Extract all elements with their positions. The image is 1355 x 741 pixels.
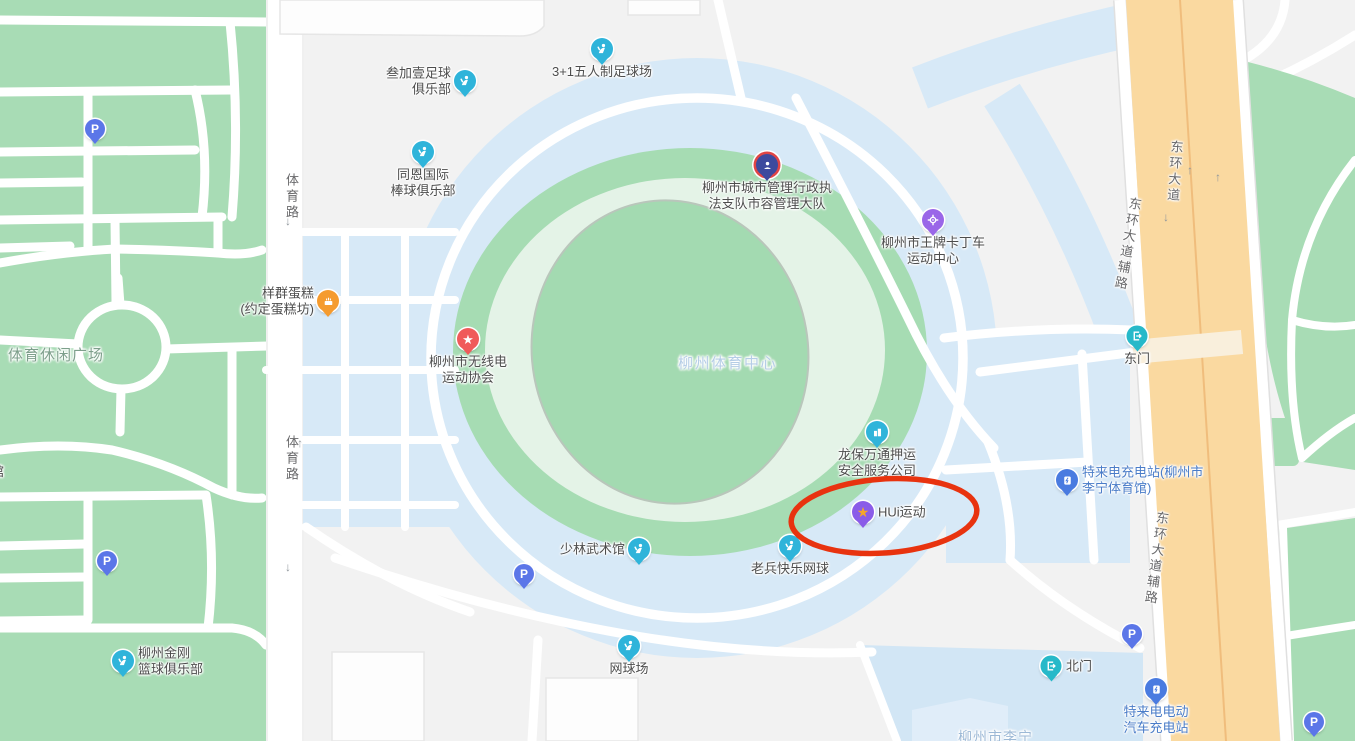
sports-icon <box>783 539 797 553</box>
poi-label-line: 安全服务公司 <box>838 463 916 479</box>
shaolin-martial-arts-label[interactable]: 少林武术馆 <box>560 541 625 557</box>
parking-marker-3[interactable]: P <box>514 564 534 584</box>
poi-label-line: 样群蛋糕 <box>240 286 314 302</box>
star-icon: ★ <box>462 333 474 346</box>
radio-sports-association-pin[interactable]: ★ <box>457 328 479 350</box>
hui-sports-pin[interactable]: ★ <box>852 501 874 523</box>
sanjiayi-football-club-pin[interactable] <box>454 70 476 92</box>
sanjiayi-football-club-label[interactable]: 叁加壹足球俱乐部 <box>386 66 451 97</box>
ev-icon <box>1061 474 1074 487</box>
poi-label-line: 棒球俱乐部 <box>390 183 455 199</box>
wangpai-kart-center-pin[interactable] <box>922 209 944 231</box>
tennis-court-pin[interactable] <box>618 635 640 657</box>
star-icon: ★ <box>857 505 870 519</box>
futsal-field-3plus1-pin[interactable] <box>591 38 613 60</box>
sports-icon <box>622 639 636 653</box>
parking-marker-2[interactable]: P <box>97 551 117 571</box>
poi-label-line: 叁加壹足球 <box>386 66 451 82</box>
poi-label-line: 少林武术馆 <box>560 541 625 557</box>
sports-icon <box>632 542 646 556</box>
poi-label-line: 柳州金刚 <box>138 646 203 662</box>
poi-label-line: 法支队市容管理大队 <box>702 196 832 212</box>
poi-label-line: 篮球俱乐部 <box>138 661 203 677</box>
poi-label-line: 运动协会 <box>429 370 507 386</box>
parking-icon: P <box>91 123 99 135</box>
map-viewport[interactable]: 体育休闲广场柳州体育中心柳州市李宁馆体育路体育路东环大道东环大道辅路东环大道辅路… <box>0 0 1355 741</box>
building-icon <box>871 426 884 439</box>
teld-charging-lining-pin[interactable] <box>1056 469 1078 491</box>
poi-label-line: 运动中心 <box>881 251 985 267</box>
poi-label-line: 特来电充电站(柳州市 <box>1082 465 1203 481</box>
tongen-baseball-club-pin[interactable] <box>412 141 434 163</box>
jingang-basketball-club-label[interactable]: 柳州金刚篮球俱乐部 <box>138 646 203 677</box>
parking-icon: P <box>1128 628 1136 640</box>
sports-icon <box>458 74 472 88</box>
yangqun-cake-shop-pin[interactable] <box>317 290 339 312</box>
parking-marker-1[interactable]: P <box>85 119 105 139</box>
east-gate-pin[interactable] <box>1127 326 1148 347</box>
gate-icon <box>1045 660 1058 673</box>
sports-icon <box>595 42 609 56</box>
hui-sports-label[interactable]: HUi运动 <box>878 504 926 520</box>
longbao-escort-security-pin[interactable] <box>866 421 888 443</box>
poi-label-line: 汽车充电站 <box>1123 720 1188 736</box>
poi-label-line: (约定蛋糕坊) <box>240 301 314 317</box>
gate-icon <box>1131 330 1144 343</box>
ev-icon <box>1150 683 1163 696</box>
kart-icon <box>926 213 940 227</box>
teld-ev-charging-station-pin[interactable] <box>1145 678 1167 700</box>
poi-label-line: 李宁体育馆) <box>1082 480 1203 496</box>
poi-label-line: 北门 <box>1066 658 1092 674</box>
gov-icon <box>761 159 774 172</box>
parking-icon: P <box>520 568 528 580</box>
poi-label-line: 俱乐部 <box>386 81 451 97</box>
teld-charging-lining-label[interactable]: 特来电充电站(柳州市李宁体育馆) <box>1082 465 1203 496</box>
north-gate-label[interactable]: 北门 <box>1066 658 1092 674</box>
sports-icon <box>116 654 130 668</box>
yangqun-cake-shop-label[interactable]: 样群蛋糕(约定蛋糕坊) <box>240 286 314 317</box>
jingang-basketball-club-pin[interactable] <box>112 650 134 672</box>
parking-icon: P <box>1310 716 1318 728</box>
parking-marker-4[interactable]: P <box>1122 624 1142 644</box>
laobing-happy-tennis-pin[interactable] <box>779 535 801 557</box>
poi-label-line: HUi运动 <box>878 504 926 520</box>
sports-icon <box>416 145 430 159</box>
parking-icon: P <box>103 555 111 567</box>
city-mgmt-law-enforcement-pin[interactable] <box>756 154 778 176</box>
north-gate-pin[interactable] <box>1041 656 1062 677</box>
poi-layer: 叁加壹足球俱乐部3+1五人制足球场同恩国际棒球俱乐部样群蛋糕(约定蛋糕坊)★柳州… <box>0 0 1355 741</box>
cake-icon <box>322 295 335 308</box>
parking-marker-5[interactable]: P <box>1304 712 1324 732</box>
shaolin-martial-arts-pin[interactable] <box>628 538 650 560</box>
